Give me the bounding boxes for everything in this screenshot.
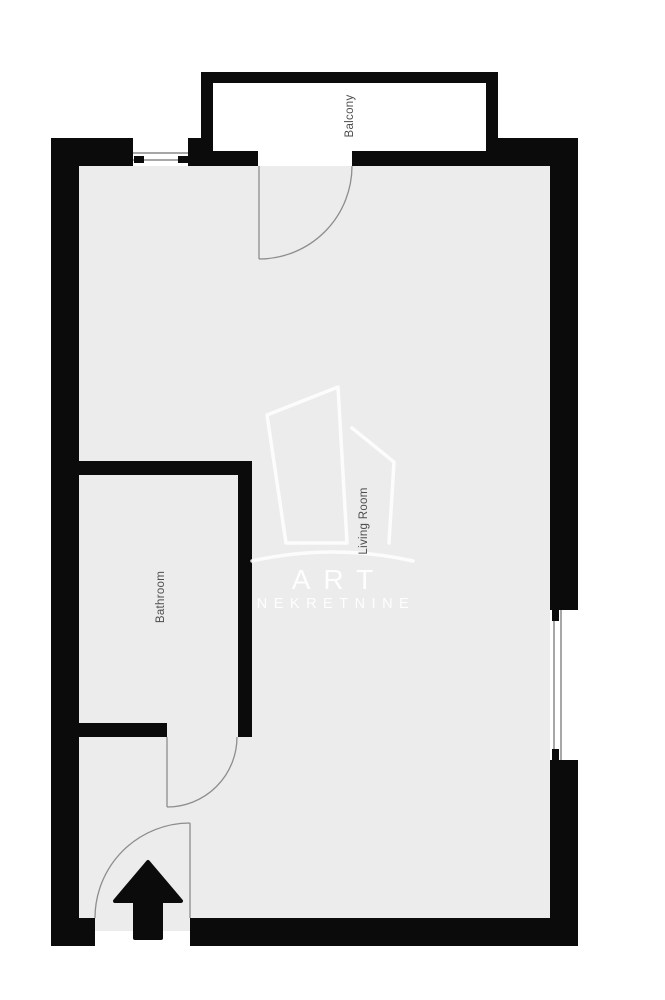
balcony-wall-right [486,72,498,166]
bathroom-label: Bathroom [155,571,167,623]
bathroom-wall-right [238,461,252,737]
balcony-wall-top [201,72,498,83]
wall-right [550,138,578,946]
balcony-wall-left [201,72,213,166]
living-room-label: Living Room [358,487,370,554]
balcony-label: Balcony [344,94,356,137]
window-top [133,138,188,166]
entrance-threshold [95,918,190,931]
floor-plan: ART NEKRETNINE [0,0,665,1000]
wall-under-balcony-left [213,151,258,166]
balcony-doorway-floor [258,151,352,166]
wall-left [51,138,79,946]
living-room-floor [79,166,550,918]
bathroom-wall-top [79,461,252,475]
wall-under-balcony-right [352,151,486,166]
window-right [550,610,578,760]
bathroom-wall-bottom [79,723,167,737]
